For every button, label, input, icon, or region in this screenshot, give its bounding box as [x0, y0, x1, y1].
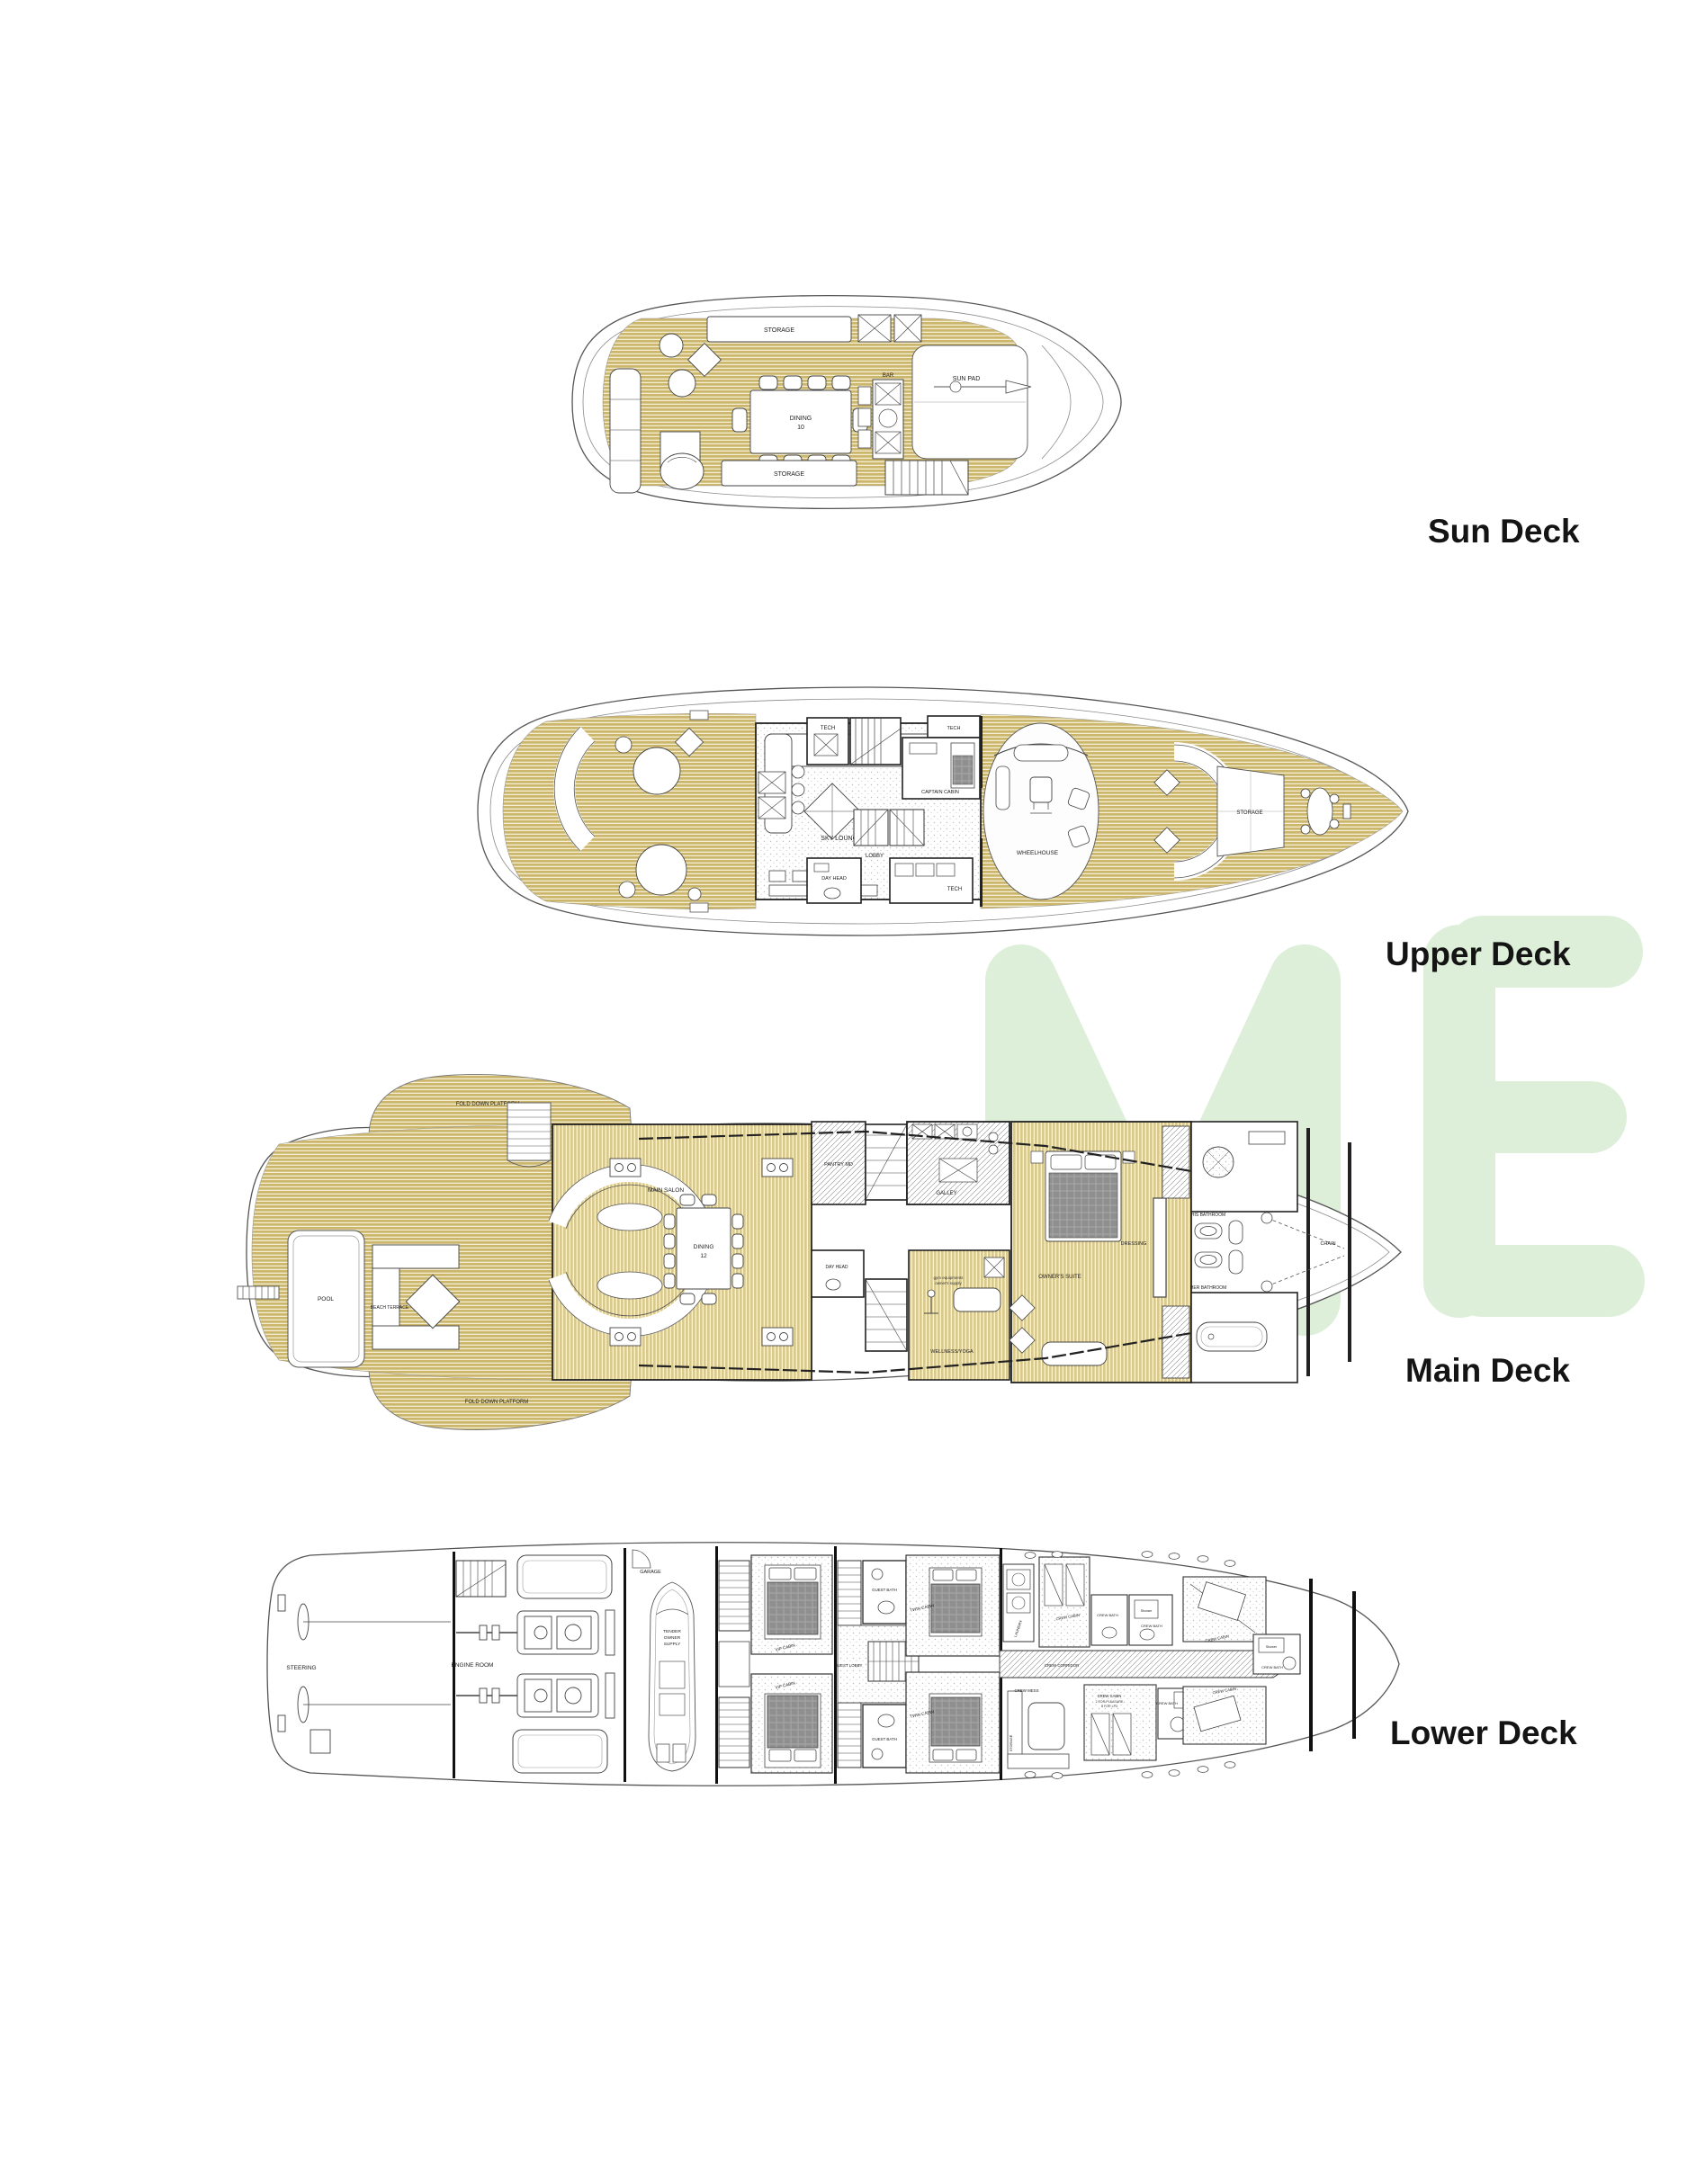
- crew-note-line2: 8 FOR LP3: [1101, 1705, 1117, 1708]
- tech-c-label: TECH: [947, 887, 962, 892]
- guest-bath-bottom-label: GUEST BATH: [872, 1737, 897, 1741]
- pool-label: POOL: [318, 1296, 334, 1302]
- fore-storage-label: STORAGE: [1236, 810, 1262, 816]
- equipment-boxes: [858, 315, 921, 342]
- storage-bottom-label: STORAGE: [774, 471, 804, 478]
- upper-deck-title: Upper Deck: [1386, 935, 1571, 973]
- upper-deck-plan: SKY LOUNGE TECH TECH CAPTAIN CABIN: [454, 676, 1426, 946]
- sun-deck-title: Sun Deck: [1428, 513, 1580, 550]
- wellness-room: gym equipments owner's supply WELLNESS/Y…: [909, 1250, 1010, 1380]
- gym-note-line1: gym equipments: [933, 1275, 964, 1280]
- lobby-label: LOBBY: [866, 854, 884, 859]
- his-bathroom-label: HIS BATHROOM: [1191, 1213, 1225, 1218]
- pantry: PANTRY MD: [812, 1122, 866, 1204]
- guest-lobby-label: GUEST LOBBY: [835, 1663, 863, 1668]
- dining12-label-line2: 12: [700, 1253, 707, 1259]
- fore-storage: STORAGE: [1217, 766, 1284, 856]
- day-head-label: DAY HEAD: [821, 876, 847, 882]
- main-deck-plan: FOLD DOWN PLATFORM FOLD DOWN PLATFORM PO…: [236, 1072, 1419, 1432]
- tech-room-b: TECH: [928, 716, 980, 738]
- tender-label-line2: OWNER: [664, 1635, 681, 1641]
- steering-label: STEERING: [286, 1665, 316, 1671]
- wheelhouse: WHEELHOUSE: [983, 723, 1099, 900]
- dressing-label: DRESSING: [1121, 1241, 1147, 1247]
- main-day-head-label: DAY HEAD: [825, 1265, 848, 1270]
- crew-cabin-bottom-label: CREW CABIN: [1098, 1694, 1122, 1698]
- tender-boat: [649, 1582, 695, 1771]
- crew-bath-bottom-label: CREW BATH: [1156, 1701, 1178, 1705]
- crew-bath-top2-label: CREW BATH: [1141, 1624, 1162, 1628]
- passerelle: [238, 1286, 279, 1299]
- shower-top-label: Shower: [1141, 1609, 1153, 1613]
- storage-top-label: STORAGE: [764, 327, 794, 334]
- tender-label-line3: SUPPLY: [664, 1642, 681, 1647]
- sun-deck-plan: STORAGE DINING 10 STORAGE: [556, 290, 1141, 515]
- dining12-label-line1: DINING: [694, 1244, 714, 1250]
- sun-pad-group: SUN PAD: [912, 345, 1031, 459]
- fold-down-platform-bottom-label: FOLD DOWN PLATFORM: [465, 1400, 529, 1405]
- mid-stairs-down: [866, 1279, 907, 1351]
- aft-stairs: [507, 1103, 551, 1167]
- wheelhouse-label: WHEELHOUSE: [1017, 850, 1059, 856]
- chain-label: CHAIN: [1320, 1241, 1335, 1247]
- crew-corridor-label: CREW CORRIDOR: [1045, 1663, 1080, 1668]
- wellness-label: WELLNESS/YOGA: [930, 1349, 974, 1355]
- mid-stairs-up: [866, 1124, 907, 1200]
- stairs-down: [885, 461, 968, 495]
- pool-group: POOL: [288, 1231, 364, 1367]
- tech-a-label: TECH: [821, 726, 835, 731]
- crew-bath-bow-label: CREW BATH: [1261, 1665, 1283, 1669]
- wall: [980, 838, 983, 907]
- crew-note-line1: 2 FOR PLEASURE: [1096, 1700, 1124, 1704]
- engine-room-label: ENGINE ROOM: [452, 1662, 494, 1669]
- main-salon-label: MAIN SALON: [648, 1187, 684, 1194]
- upper-stairs: [850, 718, 901, 765]
- yacht-deck-plans-page: STORAGE DINING 10 STORAGE: [0, 0, 1687, 2184]
- shower-bow-label: Shower: [1266, 1645, 1278, 1649]
- owners-suite-label: OWNER'S SUITE: [1038, 1275, 1081, 1280]
- main-day-head: DAY HEAD: [812, 1250, 864, 1297]
- beach-sofa: [372, 1245, 460, 1349]
- captain-cabin-label: CAPTAIN CABIN: [921, 790, 959, 795]
- day-head: DAY HEAD: [807, 858, 861, 903]
- bar-label: BAR: [883, 373, 894, 379]
- crew-bath-top-label: CREW BATH: [1097, 1613, 1118, 1617]
- captain-cabin: CAPTAIN CABIN: [902, 738, 980, 799]
- crew-mess-label: CREW MESS: [1014, 1688, 1038, 1693]
- lower-deck-title: Lower Deck: [1390, 1714, 1577, 1752]
- gym-note-line2: owner's supply: [935, 1281, 962, 1285]
- garage-label: GARAGE: [640, 1570, 661, 1575]
- lower-deck-plan: STEERING ENGINE ROOM: [247, 1525, 1408, 1804]
- tender-label-line1: TENDER: [663, 1629, 681, 1634]
- dining-label-line1: DINING: [790, 416, 812, 422]
- crew-storage-label: STORAGE: [1010, 1734, 1013, 1751]
- main-deck-title: Main Deck: [1405, 1352, 1570, 1390]
- beach-terrace-label: BEACH TERRACE: [371, 1305, 409, 1311]
- storage-top: STORAGE: [707, 317, 851, 342]
- pantry-label: PANTRY MD: [824, 1162, 853, 1168]
- storage-bottom: STORAGE: [722, 461, 857, 486]
- galley: GALLEY: [907, 1122, 1010, 1204]
- tech-b-label: TECH: [947, 726, 961, 731]
- owners-suite: OWNER'S SUITE DRESSING: [1010, 1122, 1191, 1383]
- dining-label-line2: 10: [797, 425, 804, 431]
- tech-room-a: TECH: [807, 718, 848, 765]
- her-bathroom-label: HER BATHROOM: [1190, 1285, 1226, 1291]
- galley-label: GALLEY: [936, 1191, 956, 1196]
- salon: DINING 12 MAIN SALON: [549, 1124, 812, 1380]
- tech-room-c: TECH: [890, 858, 973, 903]
- wall: [980, 716, 983, 788]
- guest-bath-top-label: GUEST BATH: [872, 1588, 897, 1592]
